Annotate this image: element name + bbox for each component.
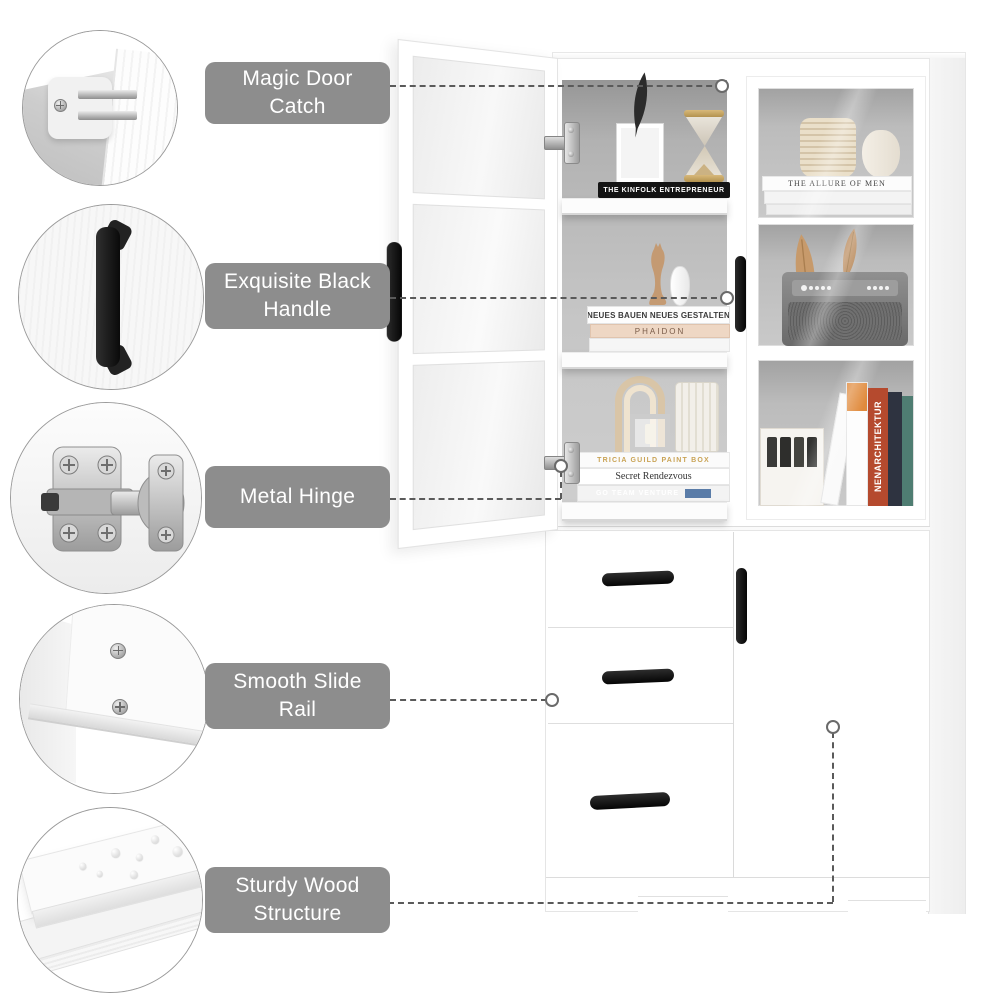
drawer-divider-1 <box>548 627 733 628</box>
connector-wood-dot <box>826 720 840 734</box>
cabinet-side-panel <box>928 58 966 914</box>
connector-slide-rail-dot <box>545 693 559 707</box>
book-tricia: TRICIA GUILD PAINT BOX <box>577 452 730 468</box>
catch-screw <box>54 99 67 112</box>
speaker-decor <box>782 272 908 346</box>
label-metal-hinge: Metal Hinge <box>205 466 390 528</box>
handle-bar <box>96 227 120 367</box>
shelf-middle <box>562 352 727 369</box>
teal-book <box>902 396 913 506</box>
book-plain-white <box>589 338 730 352</box>
small-vase-decor <box>670 266 690 306</box>
connector-hinge-dot <box>554 459 568 473</box>
connector-handle <box>390 297 727 299</box>
book-secret-title: Secret Rendezvous <box>615 471 691 482</box>
shelf-top <box>562 198 727 215</box>
book-innen-title: NENARCHITEKTUR <box>873 402 883 493</box>
connector-handle-dot <box>720 291 734 305</box>
book-neues-title: NEUES BAUEN NEUES GESTALTEN <box>587 311 730 320</box>
book-white-spine-3 <box>766 204 912 215</box>
connector-hinge-v <box>560 471 562 499</box>
product-infographic: THE KINFOLK ENTREPRENEUR NEUES BAUEN NEU… <box>0 0 1000 1000</box>
book-goteam-title: GO TEAM VENTURE <box>596 490 679 497</box>
label-exquisite-black-handle-text: Exquisite Black Handle <box>217 268 378 323</box>
hinge-illustration <box>11 403 201 593</box>
hourglass-decor <box>684 110 724 182</box>
label-smooth-slide-rail-text: Smooth Slide Rail <box>217 668 378 723</box>
connector-door-catch <box>390 85 722 87</box>
book-white-spine-2 <box>764 191 912 204</box>
right-door-handle <box>735 256 746 332</box>
label-sturdy-wood-structure-text: Sturdy Wood Structure <box>217 872 378 927</box>
kick-notch-left <box>638 896 728 913</box>
open-door-pane-1 <box>413 56 545 200</box>
connector-door-catch-dot <box>715 79 729 93</box>
book-kinfolk-title: THE KINFOLK ENTREPRENEUR <box>603 187 724 194</box>
connector-hinge-h <box>390 498 561 500</box>
shelf-bottom-board <box>562 502 727 521</box>
book-tricia-title: TRICIA GUILD PAINT BOX <box>597 457 710 464</box>
cylinder-vase-decor <box>675 382 719 452</box>
connector-wood-h <box>388 902 833 904</box>
book-allure: THE ALLURE OF MEN <box>762 176 912 191</box>
connector-wood-v <box>832 732 834 902</box>
book-allure-title: THE ALLURE OF MEN <box>788 179 886 188</box>
open-left-door <box>398 39 558 549</box>
label-magic-door-catch: Magic Door Catch <box>205 62 390 124</box>
orange-top-book <box>846 382 868 506</box>
book-goteam: GO TEAM VENTURE <box>577 485 730 502</box>
label-exquisite-black-handle: Exquisite Black Handle <box>205 263 390 329</box>
drawer-door-divider <box>733 532 734 878</box>
book-innenarchitektur: NENARCHITEKTUR <box>868 388 888 506</box>
book-goteam-tag <box>685 489 711 498</box>
book-secret: Secret Rendezvous <box>577 468 730 485</box>
ribbed-vase-decor <box>800 118 856 178</box>
base-door-handle <box>736 568 747 644</box>
book-kinfolk: THE KINFOLK ENTREPRENEUR <box>598 182 730 198</box>
base-bottom-rail-line <box>546 877 930 878</box>
rail-screw-2 <box>112 699 128 715</box>
bottle-crate-decor <box>760 428 824 506</box>
book-phaidon-title: PHAIDON <box>635 327 685 336</box>
metal-hinge-top <box>544 118 580 166</box>
open-door-pane-3 <box>413 360 545 530</box>
slide-rail-photo <box>19 604 209 794</box>
open-door-pane-2 <box>413 204 545 354</box>
drawer-divider-2 <box>548 723 733 724</box>
label-sturdy-wood-structure: Sturdy Wood Structure <box>205 867 390 933</box>
label-magic-door-catch-text: Magic Door Catch <box>217 65 378 120</box>
rail-screw-1 <box>110 643 126 659</box>
speaker-buttons <box>792 280 898 296</box>
label-smooth-slide-rail: Smooth Slide Rail <box>205 663 390 729</box>
navy-book <box>888 392 902 506</box>
label-metal-hinge-text: Metal Hinge <box>240 483 355 511</box>
catch-prong-1 <box>78 90 137 99</box>
door-catch-photo <box>22 30 178 186</box>
book-phaidon: PHAIDON <box>590 324 730 338</box>
connector-slide-rail <box>390 699 547 701</box>
book-neues: NEUES BAUEN NEUES GESTALTEN <box>587 306 730 324</box>
black-handle-photo <box>18 204 204 390</box>
catch-prong-2 <box>78 111 137 120</box>
cream-vase-decor <box>862 130 900 178</box>
kick-notch-right <box>848 900 926 913</box>
wood-structure-photo <box>17 807 203 993</box>
metal-hinge-photo <box>10 402 202 594</box>
candle-lantern-decor <box>630 414 670 452</box>
speaker-mesh <box>788 302 902 340</box>
